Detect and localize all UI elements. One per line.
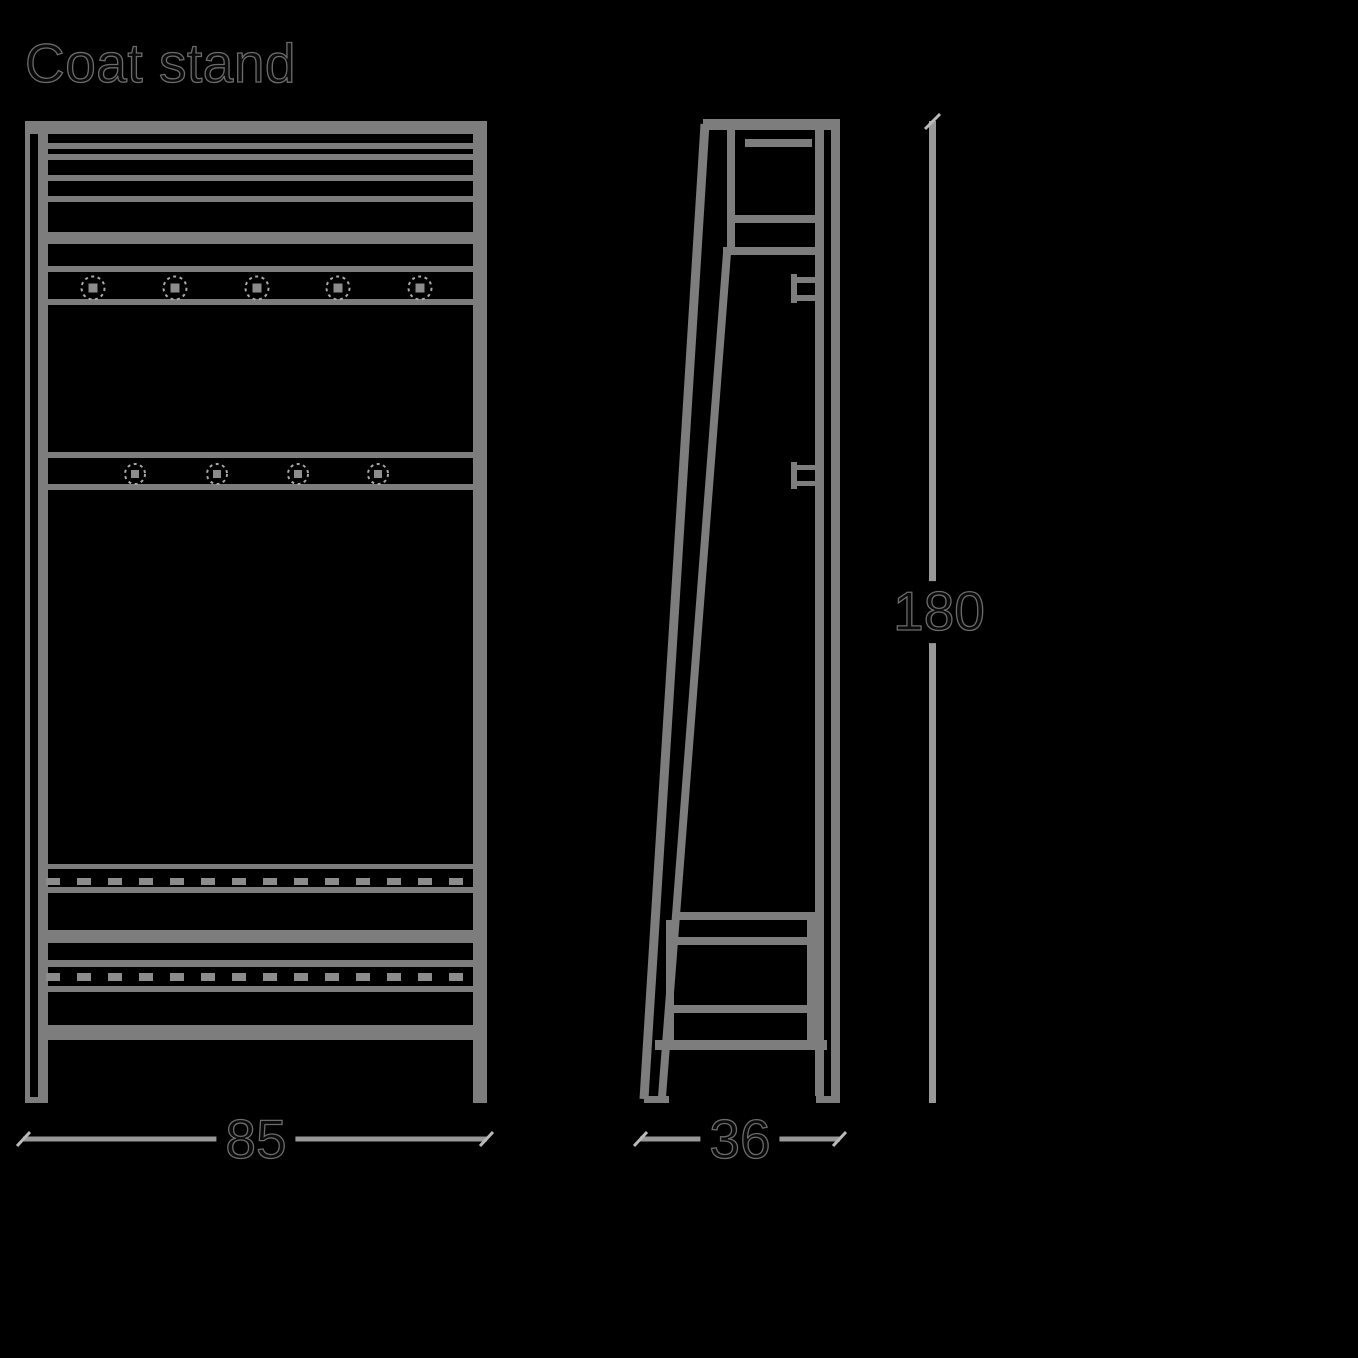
depth-dimension-label: 36 (700, 1109, 779, 1171)
hook-row-2 (125, 464, 388, 484)
technical-drawing (0, 0, 1358, 1358)
side-view-bench (655, 912, 827, 1050)
height-dimension-label: 180 (884, 581, 994, 643)
front-view-bench-slats (46, 864, 473, 1040)
side-view-hook-2 (791, 462, 818, 489)
side-view (644, 119, 840, 1103)
front-view (25, 121, 487, 1103)
hook-rail-2 (46, 452, 473, 490)
side-view-back-post (815, 119, 840, 1103)
side-view-front-leg (644, 124, 727, 1103)
side-view-hook-1 (791, 274, 818, 303)
hook-row-1 (82, 277, 432, 300)
front-view-top-slats (46, 143, 473, 244)
width-dimension-label: 85 (216, 1109, 295, 1171)
drawing-canvas: Coat stand (0, 0, 1358, 1358)
